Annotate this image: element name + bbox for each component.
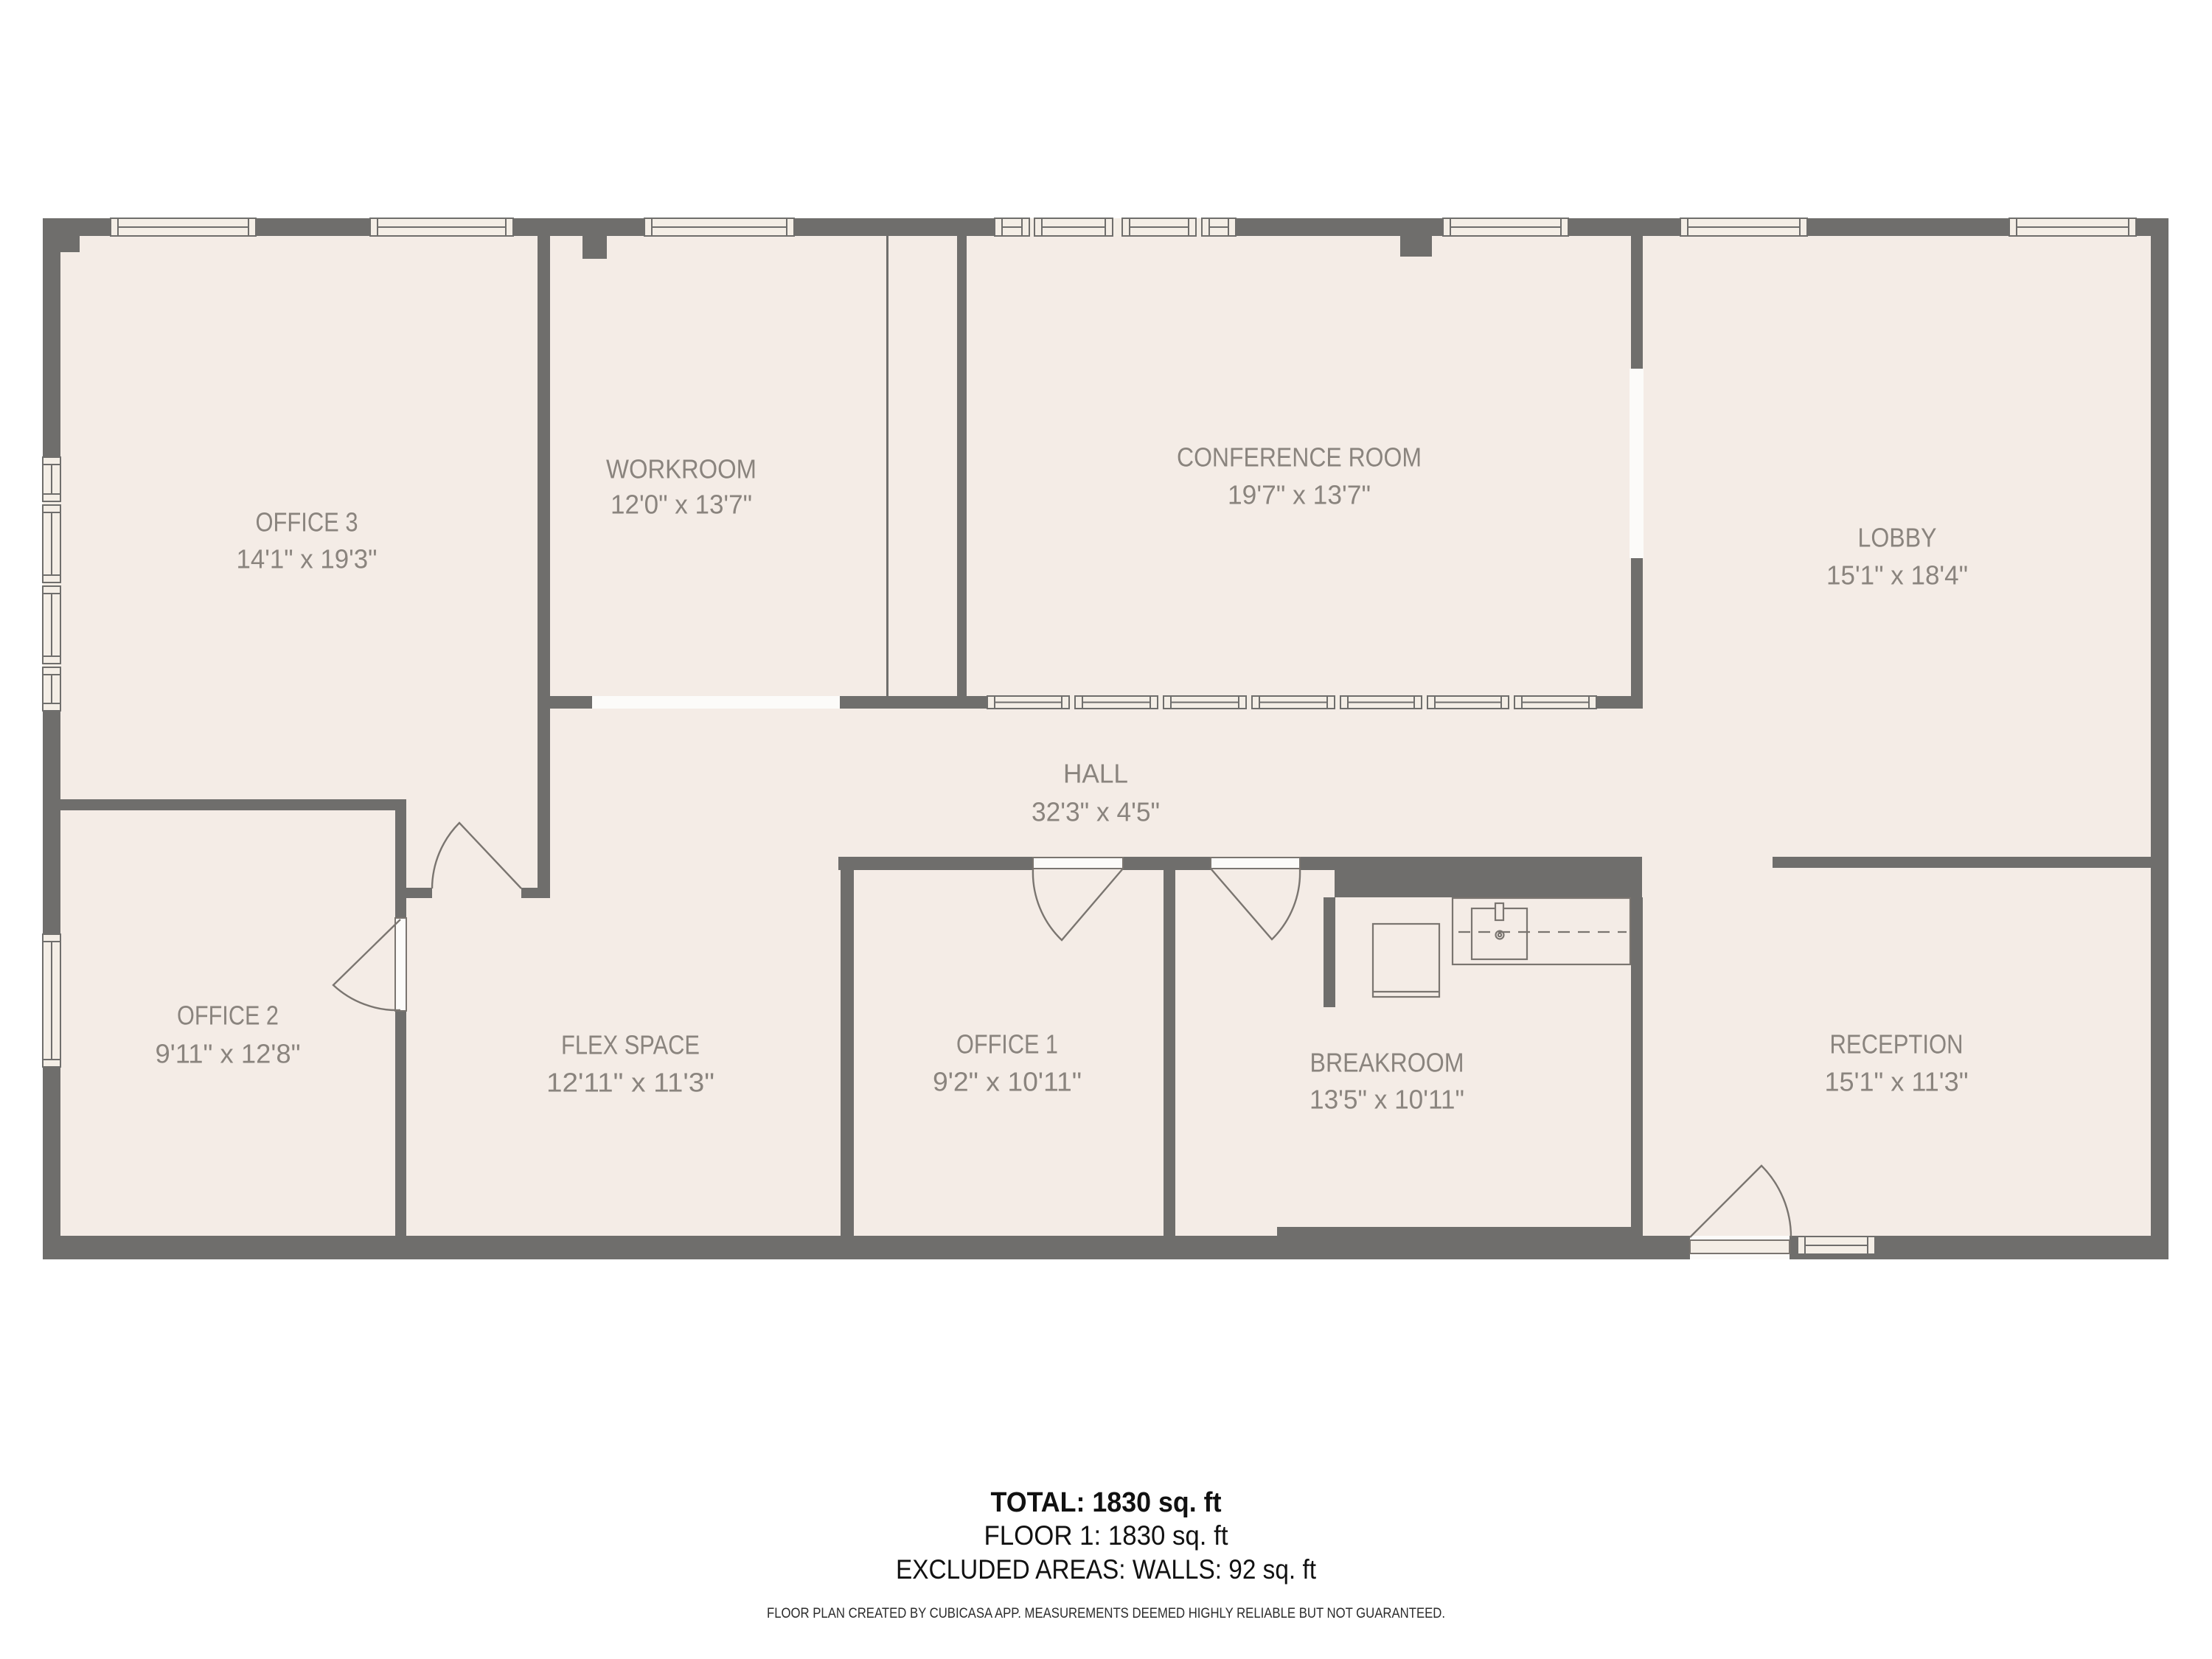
svg-text:15'1" x 18'4": 15'1" x 18'4" [1826, 560, 1968, 591]
svg-text:FLOOR PLAN CREATED BY CUBICASA: FLOOR PLAN CREATED BY CUBICASA APP. MEAS… [767, 1606, 1445, 1621]
svg-text:OFFICE 2: OFFICE 2 [177, 1001, 279, 1031]
svg-text:FLOOR 1: 1830 sq. ft: FLOOR 1: 1830 sq. ft [984, 1520, 1229, 1551]
svg-text:14'1" x 19'3": 14'1" x 19'3" [237, 544, 378, 574]
svg-text:LOBBY: LOBBY [1858, 523, 1937, 553]
svg-text:12'11" x 11'3": 12'11" x 11'3" [546, 1068, 714, 1098]
svg-text:9'11" x 12'8": 9'11" x 12'8" [156, 1039, 301, 1069]
svg-text:EXCLUDED AREAS: WALLS: 92 sq.: EXCLUDED AREAS: WALLS: 92 sq. ft [896, 1554, 1317, 1585]
svg-text:TOTAL: 1830 sq. ft: TOTAL: 1830 sq. ft [991, 1487, 1222, 1518]
svg-text:HALL: HALL [1063, 759, 1128, 789]
svg-text:13'5" x 10'11": 13'5" x 10'11" [1310, 1085, 1464, 1115]
svg-text:9'2" x 10'11": 9'2" x 10'11" [933, 1067, 1082, 1097]
svg-text:FLEX SPACE: FLEX SPACE [561, 1030, 700, 1060]
svg-text:WORKROOM: WORKROOM [606, 454, 757, 484]
svg-text:CONFERENCE ROOM: CONFERENCE ROOM [1177, 442, 1422, 473]
svg-text:RECEPTION: RECEPTION [1830, 1029, 1964, 1060]
svg-text:OFFICE 1: OFFICE 1 [956, 1029, 1058, 1060]
svg-text:19'7" x 13'7": 19'7" x 13'7" [1228, 480, 1371, 510]
svg-text:32'3" x 4'5": 32'3" x 4'5" [1032, 797, 1160, 827]
svg-text:15'1" x 11'3": 15'1" x 11'3" [1825, 1067, 1969, 1097]
svg-text:12'0" x 13'7": 12'0" x 13'7" [611, 490, 752, 520]
svg-text:OFFICE 3: OFFICE 3 [256, 507, 358, 538]
svg-text:BREAKROOM: BREAKROOM [1310, 1048, 1464, 1078]
